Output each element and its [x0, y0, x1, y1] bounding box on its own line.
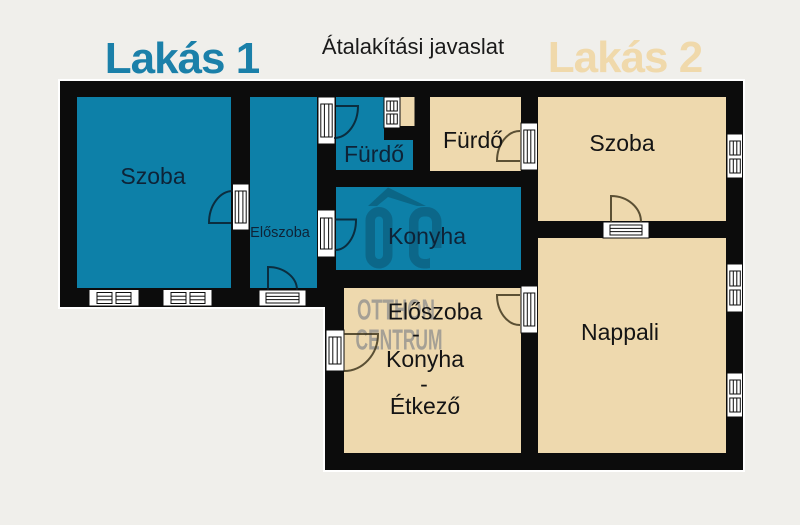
svg-text:Lakás 2: Lakás 2 — [548, 33, 702, 82]
svg-text:Étkező: Étkező — [390, 393, 460, 419]
svg-text:Konyha: Konyha — [388, 223, 466, 249]
svg-text:Szoba: Szoba — [589, 130, 654, 156]
svg-text:Nappali: Nappali — [581, 319, 659, 345]
svg-text:Szoba: Szoba — [120, 163, 185, 189]
svg-text:Átalakítási javaslat: Átalakítási javaslat — [322, 34, 504, 59]
svg-text:Előszoba: Előszoba — [388, 299, 483, 325]
svg-text:Lakás 1: Lakás 1 — [105, 34, 260, 83]
svg-text:Konyha: Konyha — [386, 346, 464, 372]
svg-text:Fürdő: Fürdő — [443, 127, 503, 153]
svg-text:-: - — [412, 321, 420, 347]
svg-text:Előszoba: Előszoba — [250, 225, 311, 241]
svg-text:Fürdő: Fürdő — [344, 141, 404, 167]
